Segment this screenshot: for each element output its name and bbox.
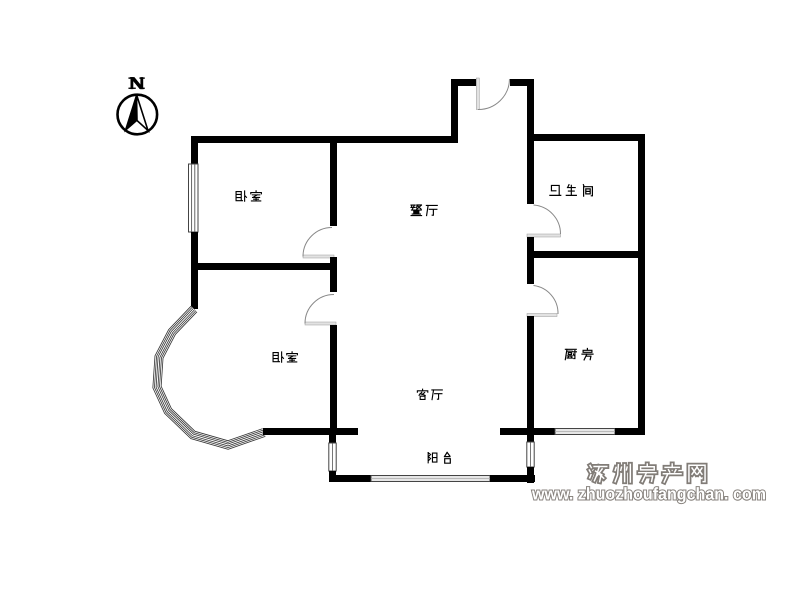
- svg-text:www. zhuozhoufangchan. com: www. zhuozhoufangchan. com: [531, 485, 766, 504]
